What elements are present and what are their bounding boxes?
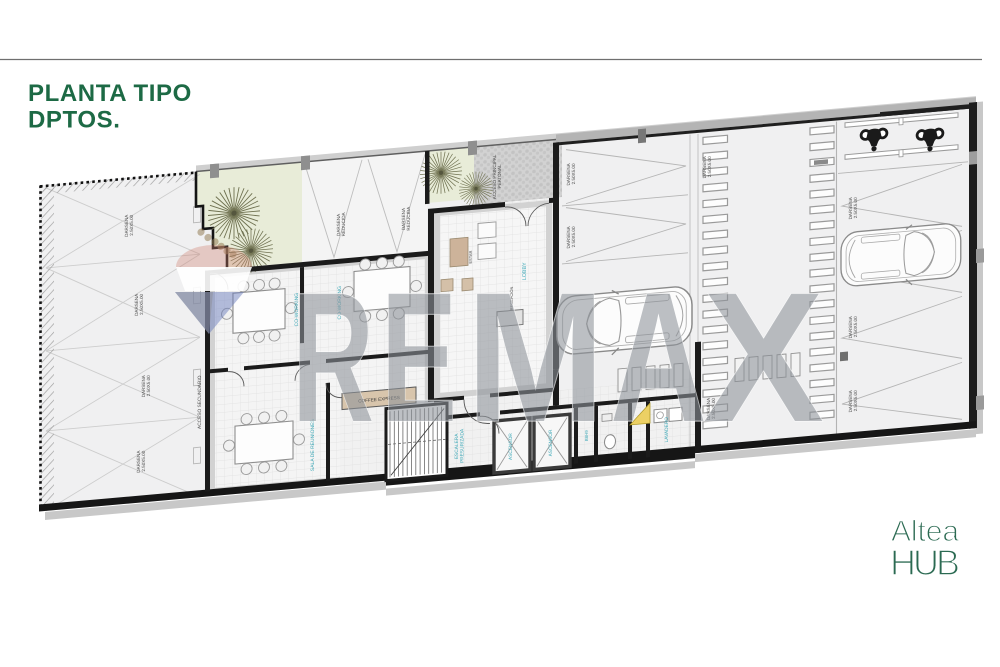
svg-text:M: M [466, 255, 605, 461]
svg-text:DARSENA2.50X5.00: DARSENA2.50X5.00 [566, 225, 576, 249]
svg-text:A: A [610, 255, 707, 461]
svg-text:DARSENA2.50X5.00: DARSENA2.50X5.00 [702, 155, 712, 179]
svg-text:DARSENAREDUCIDA: DARSENAREDUCIDA [336, 211, 346, 237]
svg-text:DARSENA2.50X5.00: DARSENA2.50X5.00 [848, 389, 858, 413]
svg-text:DARSENA2.50X5.00: DARSENA2.50X5.00 [848, 196, 858, 220]
svg-text:DARSENA2.50X5.00: DARSENA2.50X5.00 [134, 292, 144, 316]
svg-text:DARSENAREDUCIDA: DARSENAREDUCIDA [401, 206, 411, 232]
svg-text:DPTOS.: DPTOS. [28, 107, 121, 134]
svg-text:PLANTA TIPO: PLANTA TIPO [28, 80, 192, 107]
svg-text:DARSENA2.50X5.00: DARSENA2.50X5.00 [124, 213, 134, 237]
svg-text:DARSENA2.50X5.00: DARSENA2.50X5.00 [136, 449, 146, 473]
svg-text:E: E [381, 255, 457, 461]
svg-text:HUB: HUB [890, 542, 960, 583]
svg-text:ACCESO SECUNDARIO: ACCESO SECUNDARIO [197, 375, 203, 429]
svg-text:R: R [292, 255, 374, 461]
svg-text:DARSENA2.50X5.00: DARSENA2.50X5.00 [141, 374, 151, 398]
svg-text:X: X [703, 255, 824, 461]
svg-text:DARSENA2.50X5.00: DARSENA2.50X5.00 [848, 315, 858, 339]
svg-text:DARSENA2.50X5.00: DARSENA2.50X5.00 [566, 162, 576, 186]
